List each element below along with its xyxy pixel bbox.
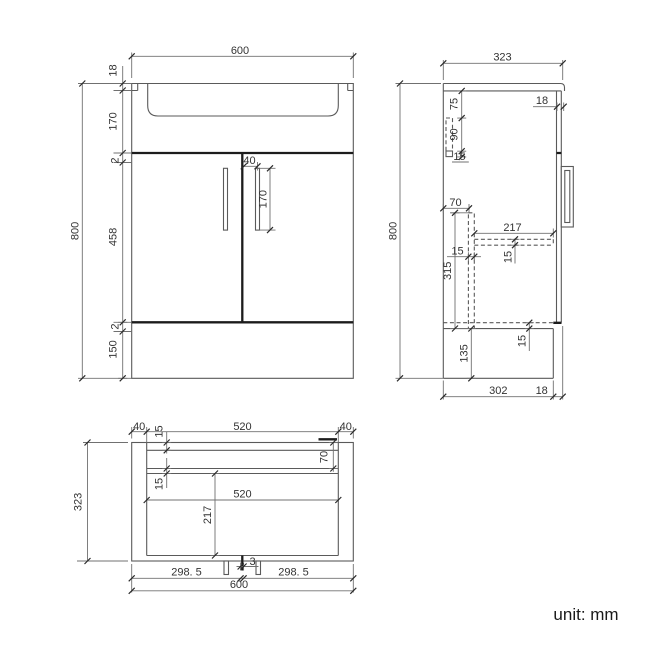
- dim-label-side-shelf-thickness: 15: [503, 251, 515, 263]
- dim-label-side-depth: 323: [493, 51, 511, 63]
- side-handle-outer: [561, 167, 573, 228]
- dim-label-front-height: 800: [70, 222, 82, 240]
- dim-label-front-top-thickness: 18: [108, 64, 120, 76]
- drawing-canvas: 600 18 170 2 458 2 150 800 40 170 323 18…: [0, 0, 650, 650]
- dim-label-front-handle-length: 170: [258, 190, 270, 208]
- side-oblique-ticks: [397, 60, 567, 399]
- dim-label-front-plinth-height: 150: [108, 340, 120, 358]
- dim-label-plan-door-gap: 3: [249, 556, 255, 568]
- dim-label-side-plinth-height: 135: [459, 344, 471, 362]
- dim-label-front-gap-top: 2: [110, 157, 122, 163]
- side-view-dimensions: 323 18 75 90 15 70 217 15 315 15 15 135 …: [388, 51, 567, 399]
- dim-label-plan-side-right: 40: [340, 421, 352, 433]
- side-countertop: [443, 84, 564, 92]
- dim-label-front-basin-depth: 170: [108, 112, 120, 130]
- dim-label-plan-width: 600: [230, 579, 248, 591]
- dim-label-plan-inner-width-top: 520: [233, 421, 251, 433]
- side-door-front: [557, 91, 562, 323]
- dim-label-side-divider-thickness: 15: [451, 245, 463, 257]
- dim-label-plan-divider-offset: 70: [319, 451, 331, 463]
- plan-left-handle: [224, 561, 229, 575]
- technical-drawing-svg: 600 18 170 2 458 2 150 800 40 170 323 18…: [0, 0, 650, 650]
- dim-label-side-rail-height: 90: [449, 128, 461, 140]
- dim-label-plan-side-left: 40: [133, 421, 145, 433]
- dim-label-side-counter-overhang: 18: [536, 95, 548, 107]
- dim-label-front-gap-bottom: 2: [110, 323, 122, 329]
- dim-label-plan-door-left: 298. 5: [171, 566, 202, 578]
- front-left-door-handle: [224, 168, 228, 230]
- front-door-seams: [132, 153, 354, 322]
- side-extension-lines: [396, 60, 564, 400]
- front-oblique-ticks: [79, 53, 356, 381]
- dim-label-side-divider-offset: 70: [449, 197, 461, 209]
- dim-label-front-handle-offset: 40: [243, 155, 255, 167]
- dim-label-side-rail-strip: 15: [453, 151, 465, 163]
- plan-view-dimensions: 40 15 520 40 70 15 520 217 323 298. 5 3 …: [73, 421, 357, 594]
- dim-label-side-height: 800: [388, 222, 400, 240]
- side-divider-panel-hidden: [468, 213, 474, 329]
- side-cabinet-outline: [443, 84, 553, 379]
- dim-label-plan-depth: 323: [73, 493, 85, 511]
- dim-label-side-shelf-depth: 217: [503, 222, 521, 234]
- plan-right-handle: [256, 561, 261, 575]
- plan-oblique-ticks: [85, 429, 357, 594]
- dim-label-side-divider-height: 315: [442, 262, 454, 280]
- dim-label-front-width: 600: [231, 45, 249, 57]
- plan-cross-ticks: [83, 443, 338, 562]
- dim-label-plan-divider-thickness: 15: [154, 478, 166, 490]
- front-view-dimensions: 600 18 170 2 458 2 150 800 40 170: [70, 45, 357, 382]
- dim-label-front-door-height: 458: [108, 228, 120, 246]
- dim-label-side-bottom-overhang: 18: [536, 385, 548, 397]
- side-rail-strip: [446, 151, 453, 157]
- dim-label-side-bottom-depth: 302: [489, 385, 507, 397]
- unit-note: unit: mm: [553, 605, 618, 624]
- plan-dimension-lines: [88, 432, 354, 591]
- side-door-seams: [553, 153, 561, 323]
- front-view: [132, 84, 354, 379]
- front-dimension-lines: [82, 56, 353, 378]
- front-basin-profile: [132, 84, 354, 117]
- dim-label-plan-shelf-depth: 217: [202, 506, 214, 524]
- side-dimension-lines: [400, 63, 563, 396]
- dim-label-plan-door-right: 298. 5: [278, 566, 309, 578]
- dim-label-side-rail-offset: 75: [449, 98, 461, 110]
- dim-label-plan-back-thickness: 15: [154, 425, 166, 437]
- dim-label-side-bottom-thickness: 15: [517, 335, 529, 347]
- dim-label-plan-inner-width: 520: [233, 488, 251, 500]
